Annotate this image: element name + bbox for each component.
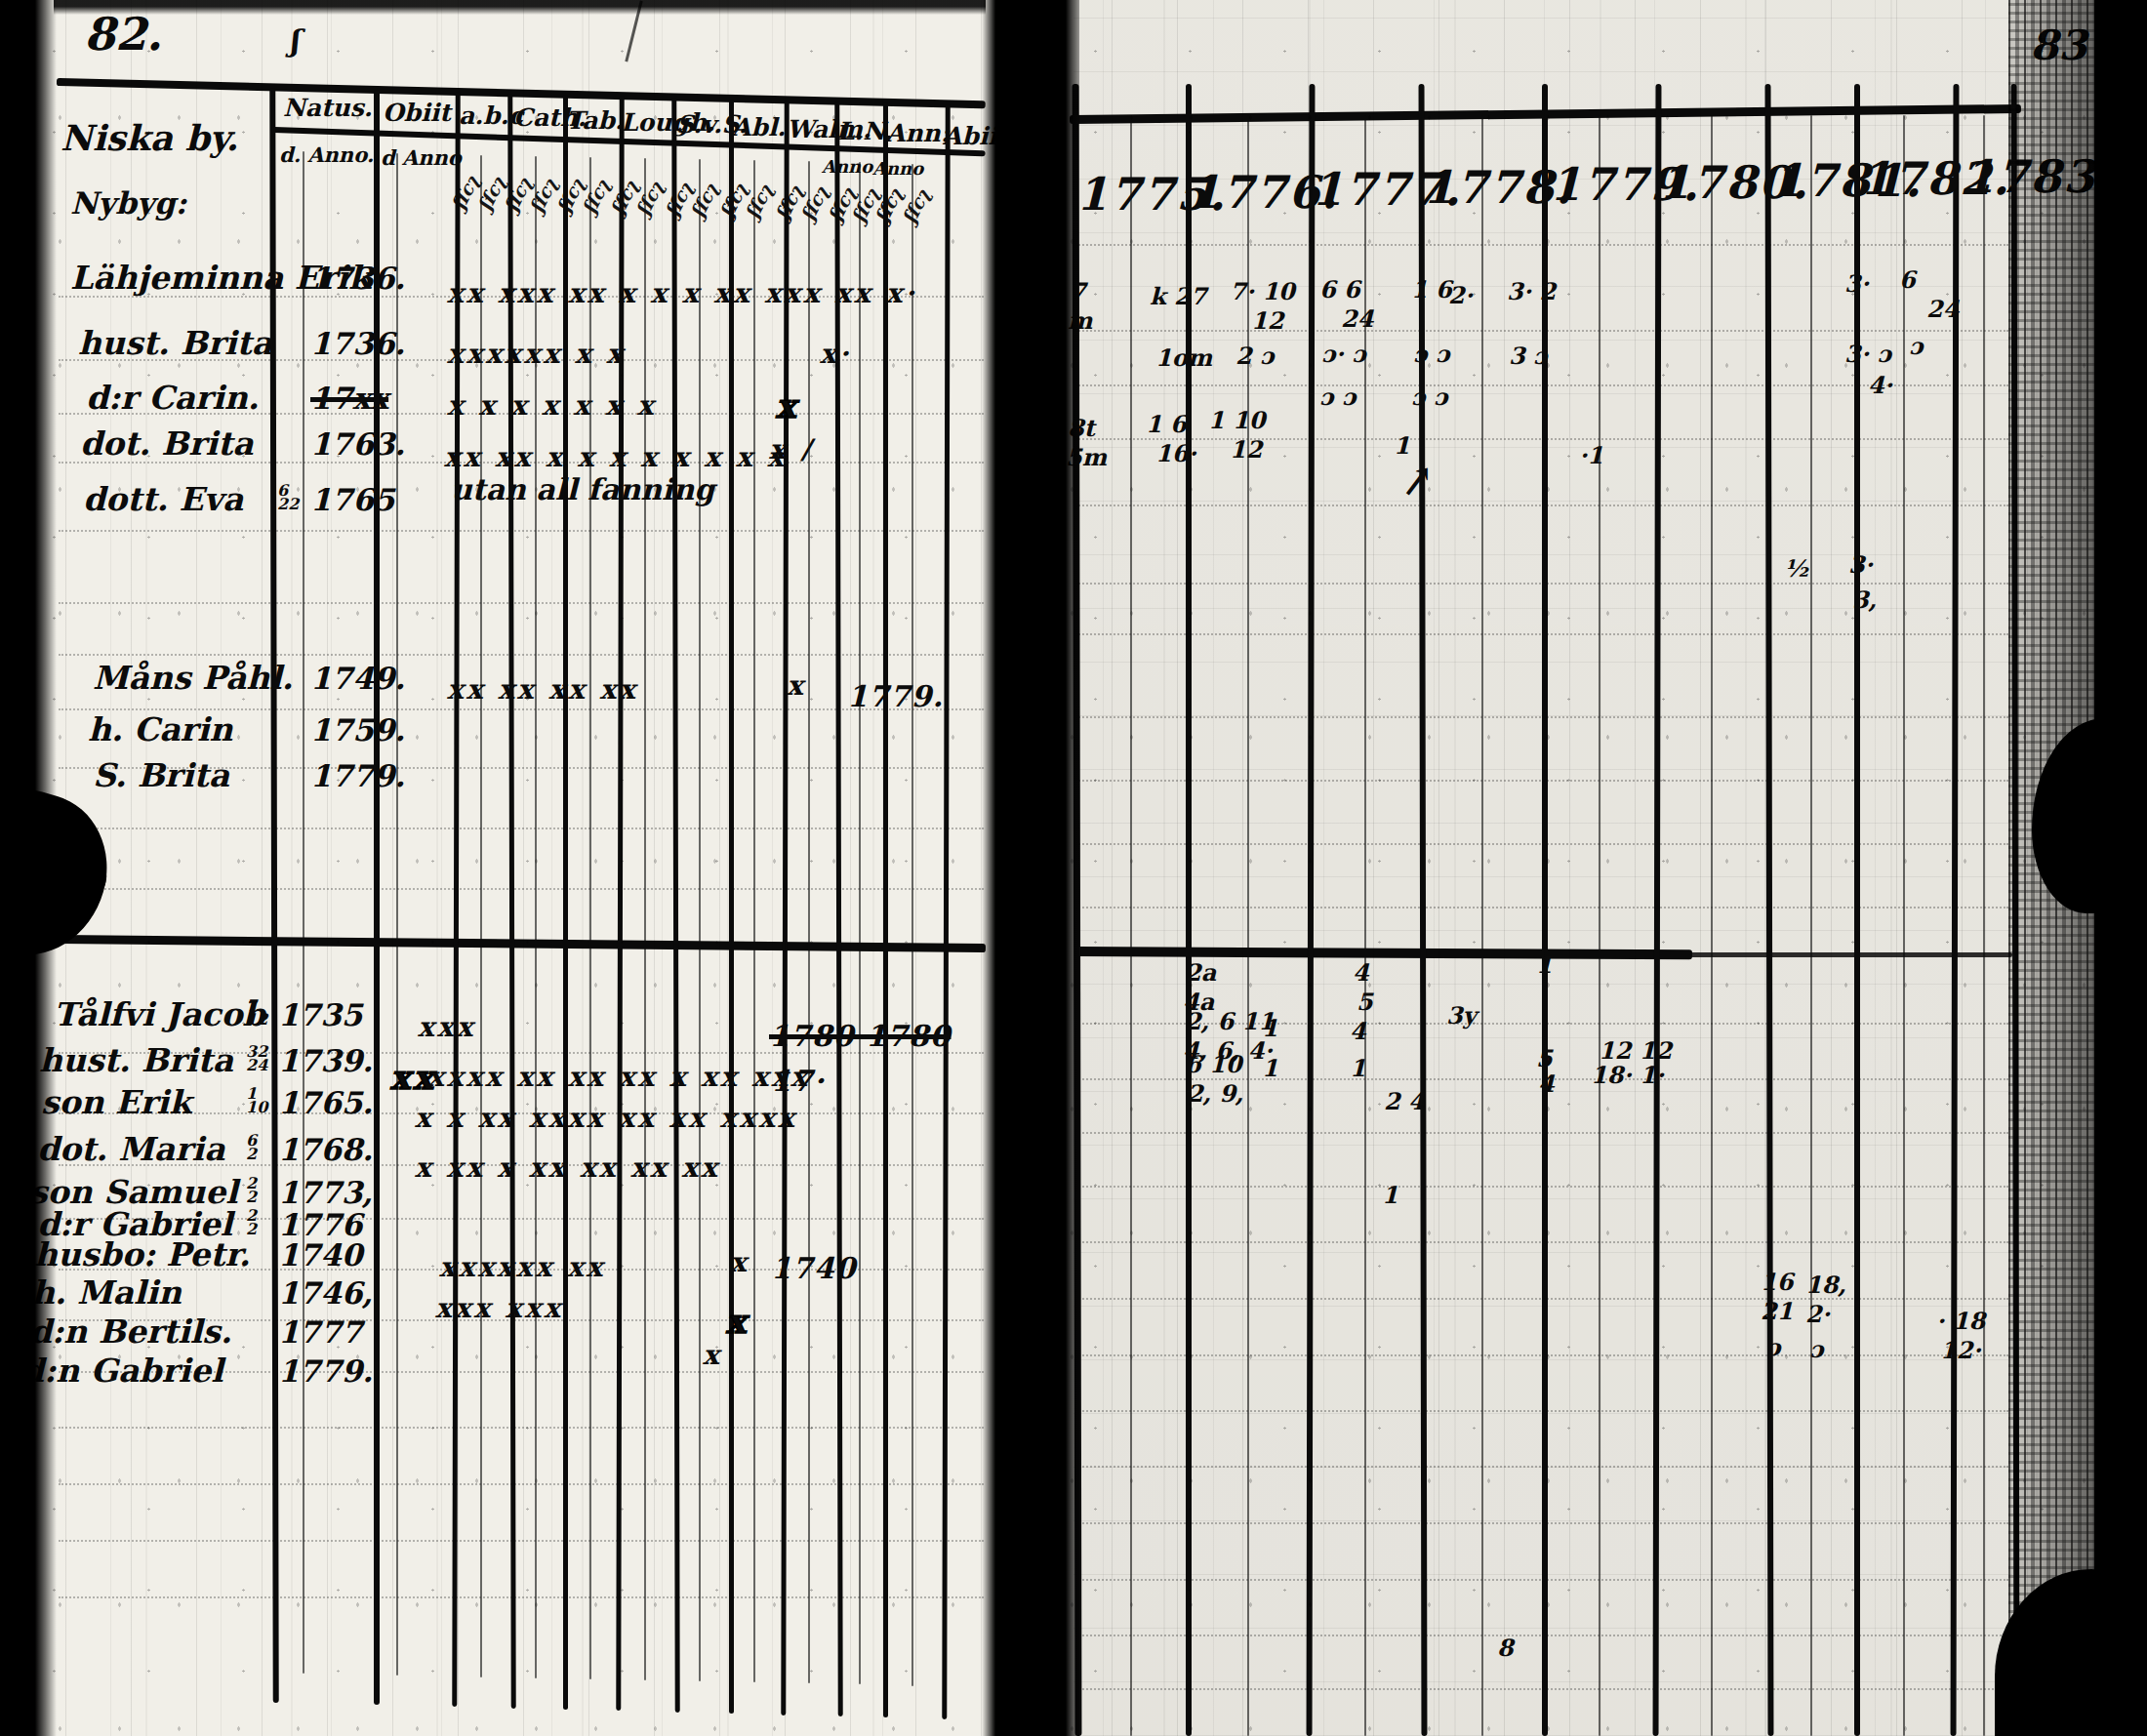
- left-column-rule-thin: [396, 153, 398, 1675]
- left-page-number: 82.: [84, 8, 162, 61]
- natus-day-mark: 32 24: [246, 1045, 267, 1073]
- left-column-rule-thin: [589, 157, 591, 1679]
- rotated-subheader-scrawl: ʃſcʅ: [448, 172, 483, 213]
- person-name: dot. Maria: [37, 1130, 225, 1168]
- row-guide-line: [59, 654, 984, 656]
- right-column-rule: [1186, 84, 1192, 1736]
- village-heading: Niska by.: [61, 117, 238, 158]
- communion-x-marks: xx xx x x x x x x x x: [444, 441, 787, 473]
- subheader-anno-1: Anno: [822, 156, 872, 177]
- scanned-parish-register-spread: 82. 83 Niska by. Nybyg: ʃ Natus.Obiita.b…: [0, 0, 2147, 1736]
- communion-x-marks: xxxxxx x x: [447, 338, 626, 370]
- ledger-scrawl: 1: [1536, 954, 1553, 977]
- natus-year: 1736.: [310, 326, 405, 361]
- natus-year: 1746,: [278, 1275, 373, 1311]
- ledger-scrawl: 2 ɔ: [1236, 345, 1275, 368]
- ledger-scrawl: 2·: [1448, 285, 1473, 307]
- ledger-scrawl: 12: [1230, 439, 1262, 462]
- left-column-rule: [671, 98, 679, 1713]
- ledger-scrawl: 3·: [1848, 554, 1873, 577]
- left-column-rule: [883, 102, 888, 1717]
- person-name: husbo: Petr.: [34, 1235, 250, 1273]
- communion-x-marks: x /: [769, 433, 814, 465]
- ledger-scrawl: ɔ: [1766, 1337, 1781, 1359]
- left-column-rule: [942, 104, 950, 1719]
- ledger-scrawl: 3· ɔ: [1844, 343, 1891, 366]
- subheader-natus-danno: d. Anno.: [279, 142, 374, 167]
- person-name: d:n Bertils.: [29, 1312, 231, 1351]
- ledger-scrawl: k 27: [1150, 286, 1206, 308]
- left-column-rule-thin: [753, 160, 755, 1682]
- ledger-scrawl: 1: [1394, 435, 1410, 458]
- ledger-scrawl: 16·: [1155, 443, 1196, 465]
- column-header-tab: Tab.: [566, 106, 624, 135]
- right-column-rule-thin: [1810, 115, 1812, 1736]
- left-column-rule-thin: [808, 161, 810, 1683]
- natus-year: 1763.: [310, 426, 405, 462]
- communion-x-marks: xxxx xx xx xx x xx xxx: [427, 1061, 810, 1093]
- row-guide-line: [59, 888, 984, 890]
- ledger-scrawl: 6: [1899, 269, 1916, 292]
- ledger-scrawl: 7· 10: [1230, 281, 1295, 303]
- natus-year: 1765: [310, 482, 394, 517]
- communion-x-marks: x: [730, 1246, 749, 1278]
- person-name: hust. Brita: [78, 324, 272, 362]
- year-annotation: 17·: [771, 1064, 825, 1098]
- ledger-scrawl: 16: [1761, 1272, 1793, 1294]
- ledger-scrawl: 4: [1353, 962, 1369, 985]
- person-name: hust. Brita: [39, 1041, 233, 1079]
- ledger-scrawl: ɔ ɔ: [1319, 386, 1357, 409]
- natus-year: 1749.: [310, 661, 405, 696]
- left-section-divider: [57, 935, 986, 952]
- subheader-anno-2: Anno: [872, 158, 923, 179]
- left-column-rule-thin: [480, 155, 482, 1677]
- right-column-rule: [1542, 84, 1548, 1736]
- natus-year: 1777: [278, 1314, 362, 1350]
- ledger-scrawl: 6 10: [1185, 1054, 1241, 1076]
- center-gutter-shadow: [982, 0, 1079, 1736]
- communion-x-marks: xxx xxx: [435, 1292, 563, 1324]
- communion-x-marks: x x xx xxxx xx xx xxxx: [415, 1102, 797, 1134]
- ledger-scrawl: 1: [1262, 1018, 1278, 1040]
- section-heading: Nybyg:: [70, 185, 186, 221]
- communion-x-marks: x·: [820, 338, 851, 370]
- natus-year: 1779.: [278, 1353, 373, 1389]
- left-column-rule-thin: [859, 162, 861, 1684]
- natus-year: 1739.: [278, 1043, 373, 1078]
- ledger-scrawl: 3·: [1844, 273, 1869, 296]
- ledger-scrawl: 12 12: [1599, 1040, 1672, 1063]
- column-header-natus: Natus.: [283, 94, 373, 122]
- person-name: dott. Eva: [83, 480, 243, 518]
- communion-x-marks: xxxxxx xx: [439, 1251, 605, 1283]
- natus-year: 1765.: [278, 1085, 373, 1120]
- ledger-scrawl: 1 6: [1411, 279, 1452, 302]
- ledger-scrawl: 3· 2: [1507, 281, 1556, 303]
- right-column-rule-thin: [1903, 115, 1905, 1736]
- left-column-rule: [729, 99, 734, 1714]
- left-column-rule-thin: [911, 164, 913, 1686]
- right-column-rule-thin: [1130, 115, 1132, 1736]
- natus-day-mark: 6 22: [277, 484, 299, 512]
- subheader-obiit-danno: d Anno: [381, 145, 462, 170]
- ledger-scrawl: 24: [1926, 299, 1959, 321]
- communion-x-marks: x x x x x x x: [447, 389, 656, 422]
- column-header-obiit: Obiit: [383, 99, 451, 127]
- left-column-rule-thin: [303, 151, 304, 1674]
- left-column-rule-thin: [699, 159, 701, 1681]
- ledger-scrawl: 1 10: [1208, 410, 1265, 432]
- ledger-scrawl: ·1: [1579, 445, 1603, 467]
- person-name: Tålfvi Jacob: [54, 995, 265, 1033]
- year-annotation: 1779.: [847, 679, 944, 713]
- column-header-ann: Ann:: [886, 119, 950, 147]
- row-note: utan all fanning: [451, 472, 714, 506]
- row-guide-line: [59, 1596, 984, 1598]
- ledger-scrawl: 6 6: [1319, 279, 1360, 302]
- row-guide-line: [59, 530, 984, 532]
- ledger-scrawl: 3,: [1852, 589, 1877, 612]
- communion-x-marks: x xx x xx xx xx xx: [415, 1151, 720, 1184]
- natus-year: 1768.: [278, 1132, 373, 1167]
- row-guide-line: [59, 1427, 984, 1429]
- left-column-rule: [507, 94, 515, 1709]
- ledger-scrawl: · 18: [1936, 1311, 1985, 1333]
- ledger-scrawl: 12·: [1940, 1340, 1981, 1362]
- rotated-subheader-scrawl: ʃſcʅ: [899, 185, 934, 226]
- row-guide-line: [59, 1540, 984, 1542]
- person-name: dot. Brita: [80, 424, 254, 463]
- communion-x-marks: x: [787, 669, 806, 702]
- left-column-rule: [781, 101, 789, 1716]
- natus-day-mark: 1 10: [246, 1087, 267, 1115]
- row-guide-line: [59, 828, 984, 829]
- left-column-rule-thin: [535, 156, 537, 1678]
- ledger-scrawl: 1: [1262, 1058, 1278, 1080]
- natus-year: 1735: [278, 997, 362, 1032]
- right-column-rule-thin: [1983, 115, 1985, 1736]
- communion-x-marks: x: [726, 1302, 749, 1341]
- right-column-rule-thin: [1481, 115, 1483, 1736]
- ledger-scrawl: 2a: [1185, 962, 1216, 985]
- left-column-rule: [452, 92, 460, 1707]
- ledger-scrawl: 24: [1341, 308, 1373, 331]
- natus-day-mark: 2 2: [246, 1177, 257, 1205]
- ledger-scrawl: 5: [1357, 991, 1373, 1014]
- communion-x-marks: x: [703, 1339, 722, 1371]
- ledger-scrawl: ɔ ɔ: [1411, 386, 1448, 409]
- row-guide-line: [59, 1483, 984, 1485]
- natus-day-mark: 6 2: [246, 1134, 257, 1162]
- ledger-scrawl: 4·: [1868, 375, 1892, 397]
- column-header-ln: L.N.: [837, 117, 892, 145]
- natus-year: 1773,: [278, 1175, 373, 1210]
- natus-day-mark: 2 2: [246, 1209, 257, 1237]
- top-edge-shadow: [54, 0, 986, 15]
- ledger-scrawl: 1om: [1155, 347, 1212, 370]
- ledger-scrawl: 1: [1382, 1185, 1398, 1207]
- natus-year: 1779.: [310, 758, 405, 793]
- ledger-scrawl: ɔ: [1909, 336, 1924, 358]
- person-name: son Erik: [41, 1083, 191, 1121]
- ledger-scrawl: 5: [1536, 1048, 1553, 1070]
- communion-x-marks: xx xxx xx x x x xx xxx xx x·: [447, 277, 917, 309]
- year-annotation: 1740: [771, 1251, 857, 1285]
- natus-day-mark: 7 12: [246, 999, 267, 1028]
- communion-x-marks: x: [776, 386, 798, 425]
- ledger-scrawl: 18,: [1805, 1274, 1846, 1297]
- ledger-scrawl: 1: [1350, 1058, 1366, 1080]
- pen-hook-mark: ʃ: [289, 27, 299, 56]
- left-column-rule-thin: [644, 158, 646, 1680]
- natus-year: 1759.: [310, 712, 405, 747]
- ledger-scrawl: 3y: [1446, 1005, 1477, 1028]
- communion-x-marks: xxx: [418, 1011, 475, 1043]
- ledger-scrawl: ɔ ɔ: [1413, 343, 1450, 366]
- person-name: Måns Påhl.: [93, 659, 293, 697]
- ledger-scrawl: 12: [1251, 310, 1283, 333]
- ledger-scrawl: 4: [1350, 1021, 1366, 1043]
- communion-x-marks: xx xx xx xx: [447, 673, 638, 706]
- column-header-abl: Abl.: [732, 113, 786, 141]
- ledger-scrawl: 8: [1497, 1637, 1514, 1660]
- right-column-rule-thin: [1599, 115, 1600, 1736]
- ledger-scrawl: 2 4: [1384, 1091, 1425, 1113]
- ledger-scrawl: 2·: [1805, 1304, 1830, 1326]
- ledger-scrawl: 21: [1761, 1301, 1793, 1323]
- row-guide-line: [59, 602, 984, 604]
- natus-year: 17xx: [310, 381, 388, 416]
- natus-year: 1740: [278, 1237, 362, 1272]
- ledger-scrawl: ɔ· ɔ: [1321, 343, 1366, 366]
- right-column-rule: [1854, 84, 1860, 1736]
- right-column-rule-thin: [1711, 115, 1713, 1736]
- year-annotation: 1780 1780: [769, 1019, 951, 1053]
- ledger-scrawl: 18· 1·: [1591, 1065, 1664, 1087]
- ledger-scrawl: ɔ: [1809, 1339, 1824, 1361]
- natus-year: 1736.: [310, 261, 405, 296]
- ledger-scrawl: ½: [1784, 558, 1808, 581]
- ledger-scrawl: 4: [1538, 1073, 1555, 1096]
- person-name: d:r Carin.: [86, 379, 259, 417]
- ledger-scrawl: 2, 9,: [1187, 1083, 1243, 1106]
- ledger-scrawl: 3 ɔ: [1509, 345, 1548, 368]
- ledger-scrawl: 1 6: [1146, 414, 1187, 436]
- person-name: S. Brita: [93, 756, 229, 794]
- person-name: h. Carin: [88, 710, 233, 748]
- right-section-divider-thin: [1690, 952, 2012, 957]
